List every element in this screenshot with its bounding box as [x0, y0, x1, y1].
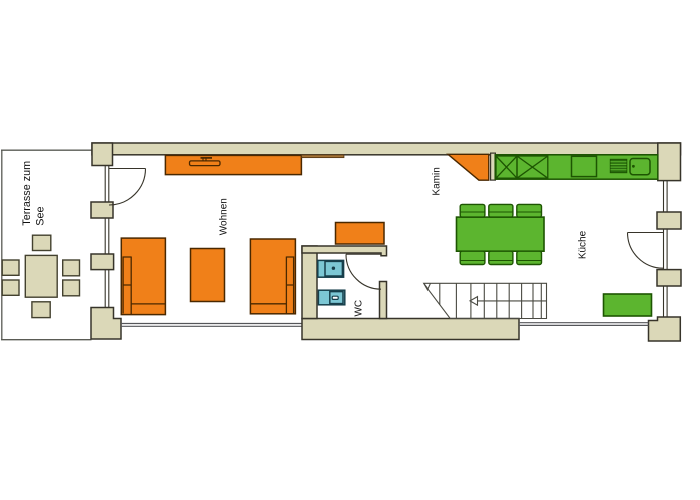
svg-text:Wohnen: Wohnen [218, 198, 229, 235]
svg-text:Kamin: Kamin [432, 167, 443, 195]
svg-text:Küche: Küche [577, 230, 588, 259]
svg-text:Terrasse zum: Terrasse zum [21, 161, 33, 226]
svg-text:See: See [35, 206, 47, 225]
svg-text:WC: WC [354, 300, 365, 317]
